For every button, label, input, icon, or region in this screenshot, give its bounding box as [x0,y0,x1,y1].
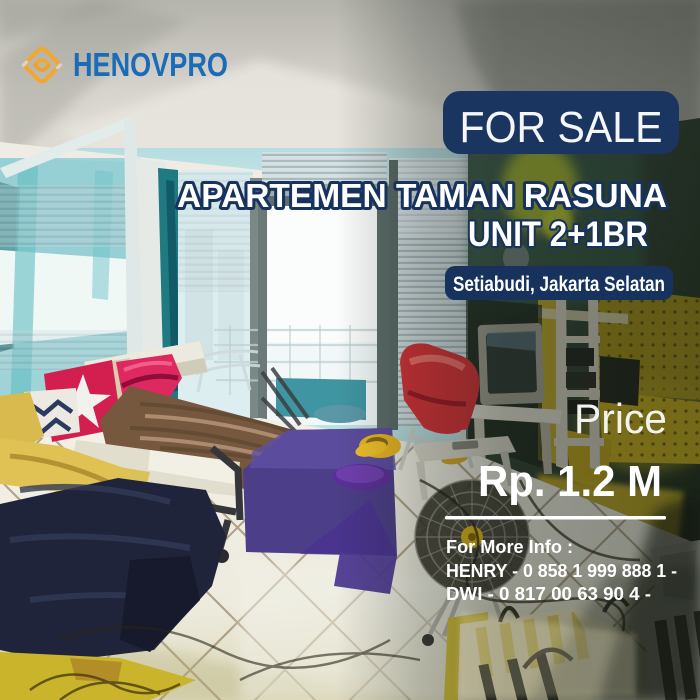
svg-text:HENOVPRO: HENOVPRO [73,46,228,83]
svg-text:DWI - 0 817 00 63 90 4 -: DWI - 0 817 00 63 90 4 - [446,584,651,604]
svg-text:For More Info :: For More Info : [446,537,573,557]
svg-text:FOR SALE: FOR SALE [460,103,663,152]
svg-text:UNIT 2+1BR: UNIT 2+1BR [468,215,648,254]
svg-text:HENRY - 0 858 1 999 888 1 -: HENRY - 0 858 1 999 888 1 - [446,561,677,581]
svg-text:Price: Price [574,395,667,442]
svg-text:Rp. 1.2 M: Rp. 1.2 M [478,457,662,506]
svg-text:Setiabudi, Jakarta Selatan: Setiabudi, Jakarta Selatan [453,273,665,296]
svg-text:APARTEMEN TAMAN RASUNA: APARTEMEN TAMAN RASUNA [177,177,667,214]
